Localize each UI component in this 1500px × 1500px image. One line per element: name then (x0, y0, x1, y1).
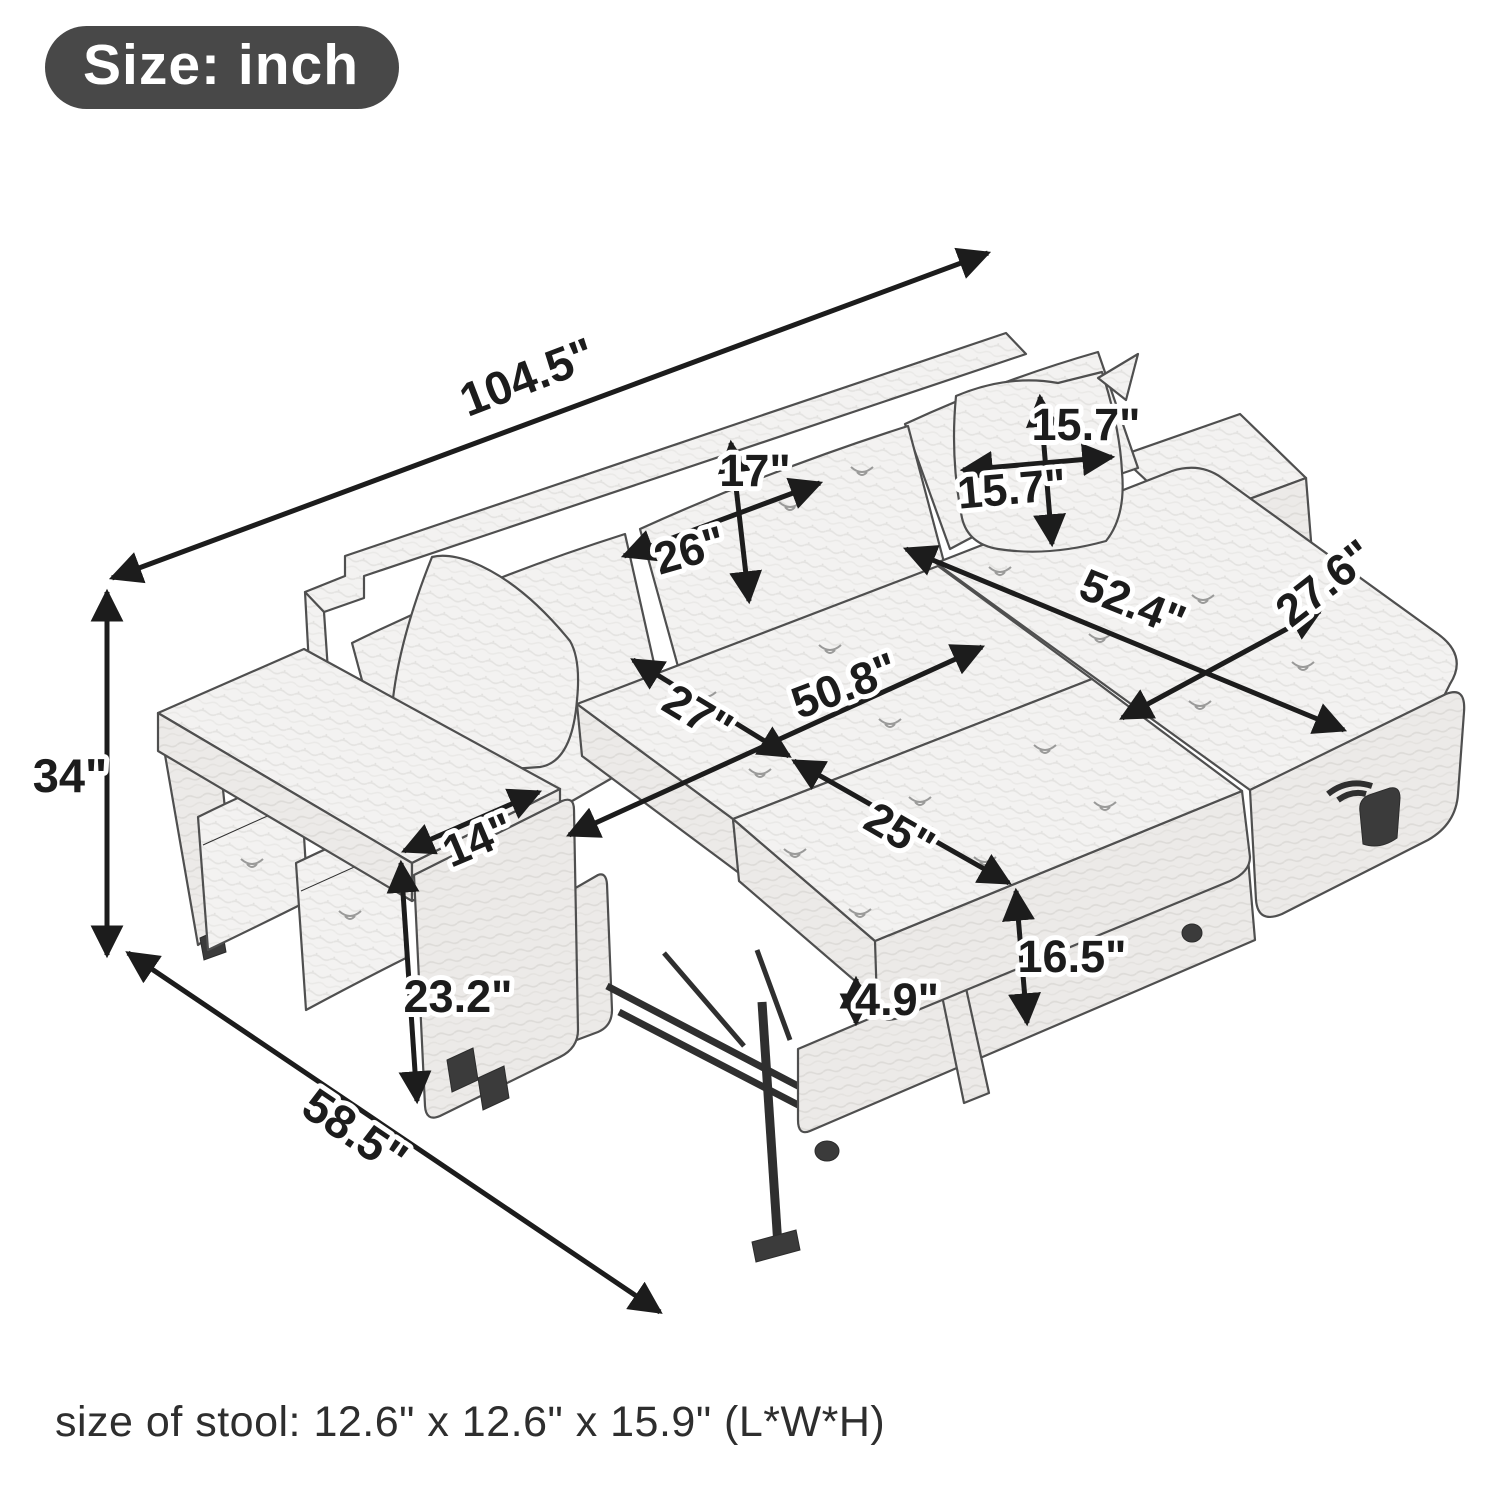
dim-label-mattress-thickness: 4.9" (855, 974, 939, 1025)
stool-size-text: size of stool: 12.6" x 12.6" x 15.9" (L*… (55, 1398, 885, 1446)
dim-label-back-cushion-height: 17" (719, 445, 790, 496)
frame-strut (664, 950, 790, 1046)
chaise-leg (1360, 788, 1400, 846)
frame-leg (762, 1002, 778, 1246)
dim-label-overall-depth: 58.5" (293, 1078, 417, 1186)
dim-label-armrest-height: 23.2" (404, 971, 513, 1022)
dim-label-overall-height: 34" (33, 749, 108, 802)
dim-label-overall-length: 104.5" (452, 327, 602, 427)
caster-wheel (815, 1141, 839, 1161)
dim-label-sleeper-height: 16.5" (1018, 931, 1127, 982)
stool-size-note: size of stool: 12.6" x 12.6" x 15.9" (L*… (55, 1398, 885, 1447)
dim-label-pillow-width: 15.7" (955, 458, 1068, 518)
sofa-dimension-diagram: 104.5" 34" 58.5" 17" 26" 15.7" 15.7" 52.… (0, 0, 1500, 1500)
caster-wheel (1182, 924, 1202, 942)
dim-label-pillow-height: 15.7" (1032, 399, 1141, 450)
product-dimension-image: Size: inch (0, 0, 1500, 1500)
